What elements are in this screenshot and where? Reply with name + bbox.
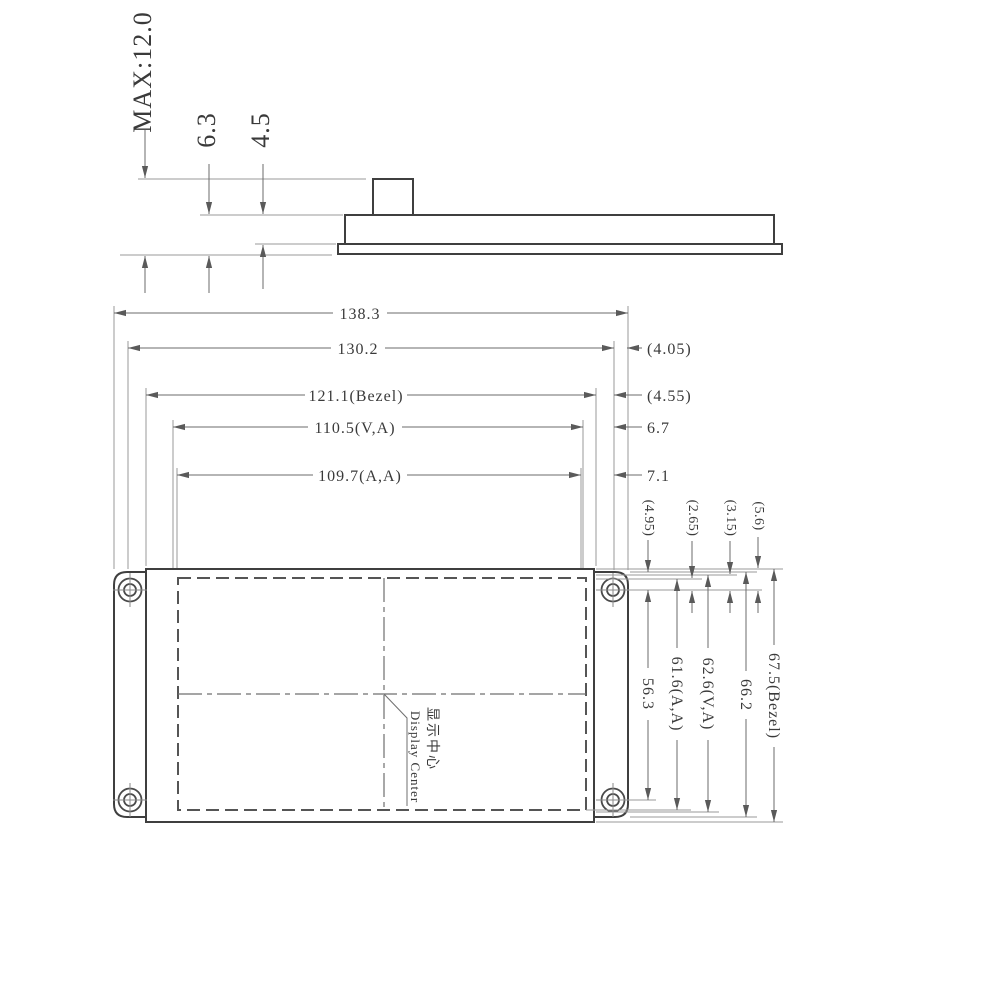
front-left-mounting-ear [114,572,148,817]
dim-thickness-body: 4.5 [246,112,275,148]
side-view: MAX:12.0 6.3 4.5 [120,11,782,293]
dim-aa-height-group: 61.6(A,A) [668,648,685,740]
side-view-flange [338,244,782,254]
dim-active-area-height: 61.6(A,A) [668,657,685,732]
front-view: 显示中心 Display Center [113,569,630,822]
dim-top-offset-1: (4.95) [641,500,656,537]
dim-hole-pitch-group: 56.3 [639,668,656,720]
dim-thickness-with-flange: 6.3 [192,112,221,148]
dim-bezel-height: 67.5(Bezel) [765,653,782,739]
dim-outline-width: 130.2 [338,341,379,358]
dim-top-offset-4: (5.6) [751,501,766,530]
technical-drawing-canvas: MAX:12.0 6.3 4.5 138.3 130.2 121.1(Bezel… [0,0,1000,1000]
side-view-body [345,215,774,244]
dim-right-offset-2: (4.55) [647,388,692,405]
dim-hole-pitch: 56.3 [639,678,656,710]
dim-active-area-width: 109.7(A,A) [318,468,402,485]
dim-viewing-area-height: 62.6(V,A) [699,658,716,731]
front-right-mounting-ear [592,572,628,817]
note-display-center-zh: 显示中心 [424,707,440,771]
width-dimensions: 138.3 130.2 121.1(Bezel) 110.5(V,A) 109.… [114,305,692,576]
dim-top-offset-2: (2.65) [685,500,700,537]
dim-outline-height-group: 66.2 [737,671,754,719]
dim-bezel-width: 121.1(Bezel) [308,388,403,405]
dim-viewing-area-width: 110.5(V,A) [314,420,395,437]
dim-right-offset-1: (4.05) [647,341,692,358]
side-view-dimension-lines [145,130,263,293]
front-bezel-outline [146,569,594,822]
dim-total-width: 138.3 [340,306,381,323]
dim-top-offset-3: (3.15) [723,500,738,537]
dim-outline-height: 66.2 [737,679,754,711]
dim-va-height-group: 62.6(V,A) [699,648,716,740]
dim-right-offset-3: 6.7 [647,420,670,437]
note-display-center-en: Display Center [408,711,423,803]
dim-right-offset-4: 7.1 [647,468,670,485]
side-view-connector [373,179,413,215]
dim-max-thickness: MAX:12.0 [128,11,157,132]
side-view-reference-lines [120,179,366,255]
dim-bezel-height-group: 67.5(Bezel) [765,645,782,747]
dimension-drawing: MAX:12.0 6.3 4.5 138.3 130.2 121.1(Bezel… [0,0,1000,1000]
